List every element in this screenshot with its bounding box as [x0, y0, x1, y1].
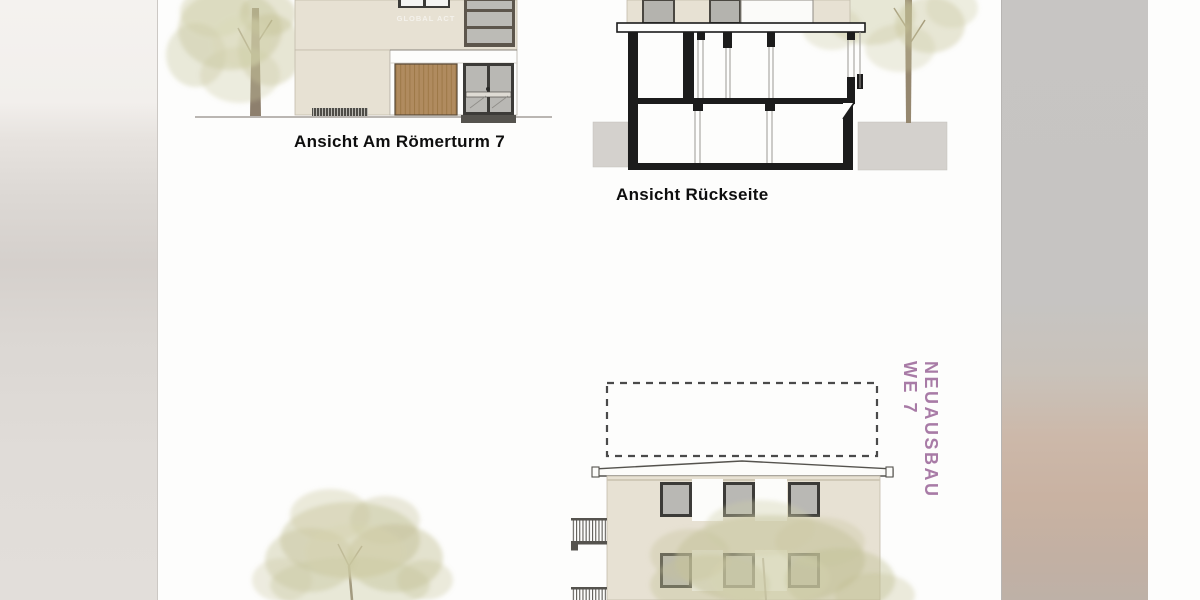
roof-slab — [617, 23, 865, 32]
drawing-sheet: GLOBAL ACT Ansicht Am Römerturm 7 Ansich… — [0, 0, 1200, 600]
caption-rear-section: Ansicht Rückseite — [616, 185, 768, 205]
elevations-artwork — [0, 0, 1200, 600]
left-facade — [295, 50, 390, 115]
ground-right — [858, 122, 947, 170]
neuausbau-dashed-outline — [607, 383, 877, 456]
tree-front-elevation — [166, 0, 302, 116]
section-window-lines — [695, 32, 860, 163]
roof — [593, 461, 893, 476]
caption-front-elevation: Ansicht Am Römerturm 7 — [294, 132, 505, 152]
ground-left — [593, 122, 628, 167]
tree-left-bottom — [252, 489, 453, 600]
new-extension-elevation-drawing — [252, 383, 915, 600]
front-elevation-drawing — [166, 0, 552, 123]
entry-door — [463, 63, 514, 115]
door-step — [461, 115, 516, 123]
neuausbau-annotation-line1: NEUAUSBAU — [920, 361, 941, 499]
balcony-lower — [571, 587, 607, 600]
vent-grille — [312, 108, 368, 116]
upper-storey — [627, 0, 850, 23]
neuausbau-annotation-line2: WE 7 — [899, 361, 920, 499]
neuausbau-annotation: NEUAUSBAU WE 7 — [899, 361, 941, 499]
rear-section-drawing — [593, 0, 978, 170]
top-window — [398, 0, 450, 8]
section-walls — [628, 32, 863, 170]
balcony-upper — [571, 518, 607, 551]
stairwell-window-column — [464, 0, 515, 47]
company-watermark: GLOBAL ACT — [394, 14, 458, 23]
garage-door — [395, 64, 457, 115]
